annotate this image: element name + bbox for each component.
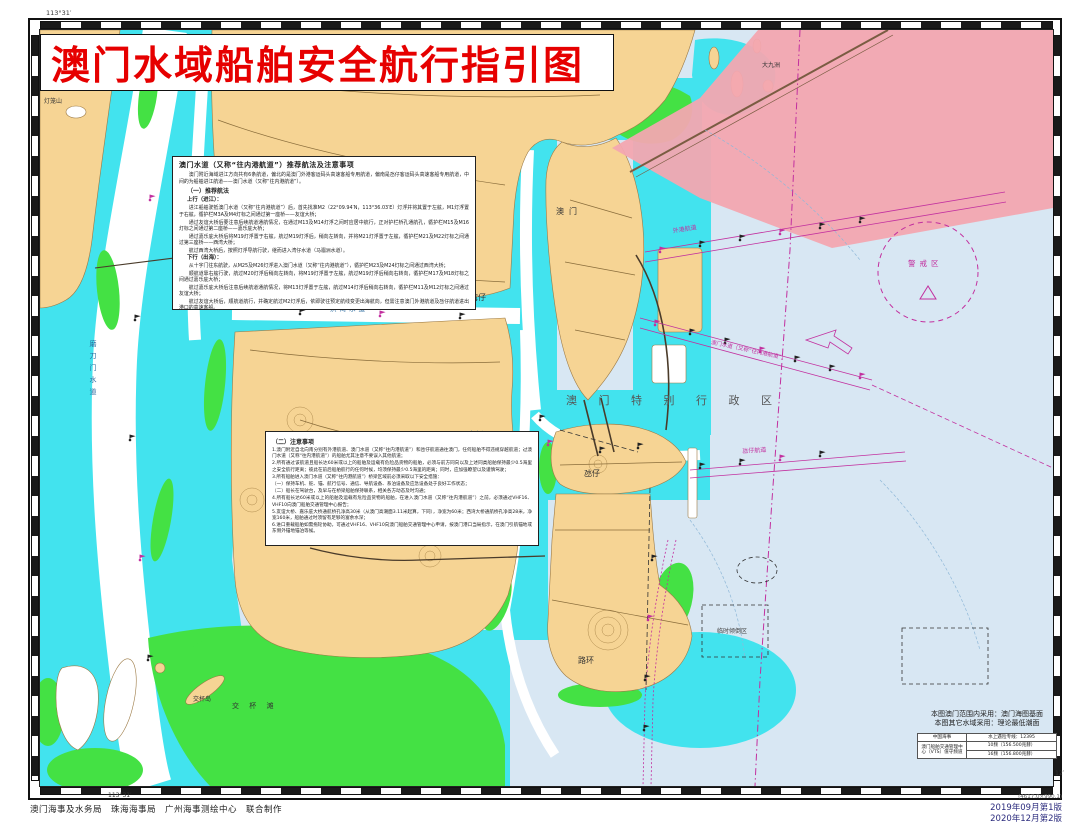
- contact-table-value: 水上遇险专线：12395: [967, 733, 1057, 742]
- notice-text-box: （二）注意事项 1.澳门附近自北向南分别有外港航道、澳门水道（又称“往内港航道”…: [265, 431, 539, 546]
- notice-item: 2.所有通过该航道且船长达60米或以上的船舶及运载有危险品货物的船舶，必须与前方…: [272, 461, 532, 473]
- downbound-step: 顺航道靠右舷行驶，航过M20灯浮后稍向左转向，将M19灯浮置于左舷，航过M19灯…: [179, 271, 469, 284]
- downbound-step: 航过嘉乐庇大桥后注意后续航道通航情况，将M13灯浮置于左舷，航过M14灯浮后稍向…: [179, 285, 469, 298]
- guidance-section1: （一）推荐航法: [187, 188, 469, 196]
- upbound-step: 通过友谊大桥后要注意后续航道通航情况，在通过M13及M14灯浮之间时应居中航行，…: [179, 220, 469, 233]
- downbound-step: 从十字门往东航驶，从M25及M26灯浮进入澳门水道（又称“往内港航道”），循护栏…: [179, 263, 469, 270]
- notice-item: 1.澳门附近自北向南分别有外港航道、澳门水道（又称“往内港航道”）和氹仔航道通往…: [272, 448, 532, 460]
- chart-title: 澳门水域船舶安全航行指引图: [40, 34, 614, 91]
- contact-table: 中国海事 水上遇险专线：12395 澳门船舶交通管理中心（VTS）值守频道 10…: [917, 733, 1057, 760]
- contact-table-label: 澳门船舶交通管理中心（VTS）值守频道: [918, 742, 967, 759]
- notice-item: （二）船长在驾驶台，及早与在桥梁船舶保持联系，相关各方动态及时沟通；: [272, 489, 532, 495]
- contact-table-label: 中国海事: [918, 733, 967, 742]
- edition-line2: 2020年12月第2版: [930, 814, 1062, 825]
- edition-line1: 2019年09月第1版: [930, 803, 1062, 814]
- datum-line2: 本图其它水域采用：理论最低潮面: [902, 719, 1072, 728]
- edition-notes: 2019年09月第1版 2020年12月第2版: [930, 803, 1062, 825]
- guidance-heading: 澳门水道（又称“往内港航道”）推荐航法及注意事项: [179, 161, 469, 170]
- longitude-label-top-left: 113°31′: [46, 9, 71, 17]
- notice-item: 4.所有船长达60米或以上的船舶及运载有危险品货物的船舶，在进入澳门水道（又称“…: [272, 496, 532, 508]
- nautical-chart-map: [0, 0, 1080, 825]
- plot-size-note: (4617.0×990.1): [990, 794, 1062, 800]
- notice-item: （一）保持车机、舵、锚、航行信号、通信、导航设备、系泊设备及应急设备处于良好工作…: [272, 482, 532, 488]
- notice-heading: （二）注意事项: [272, 439, 532, 447]
- guidance-text-box: 澳门水道（又称“往内港航道”）推荐航法及注意事项 澳门附近海域进江方向共有6条航…: [172, 156, 476, 310]
- contact-table-value: 16频（156.800兆赫）: [967, 750, 1057, 759]
- downbound-step: 航过友谊大桥后，顺航道航行，并确定航过M2灯浮后，依即驶往预定航线变更出海航向，…: [179, 299, 469, 310]
- nautical-chart-page: 澳门水域船舶安全航行指引图 澳门水道（又称“往内港航道”）推荐航法及注意事项 澳…: [0, 0, 1080, 825]
- contact-table-value: 10频（156.500兆赫）: [967, 742, 1057, 751]
- publisher-credits: 澳门海事及水务局 珠海海事局 广州海事测绘中心 联合制作: [30, 803, 282, 815]
- notice-item: 5.友谊大桥、嘉乐庇大桥通航桥孔净高30米（从澳门高潮面3.11米起算，下同），…: [272, 510, 532, 522]
- upbound-step: 通过嘉乐庇大桥后将M19灯浮置于右舷，航过M19灯浮后，稍向左转向，并将M21灯…: [179, 234, 469, 247]
- upbound-step: 进江船舶驶抵澳门水道（又称“往内港航道”）后，首先找准M2（22°09.94′N…: [179, 205, 469, 218]
- downbound-heading: 下行（出海）：: [187, 255, 469, 262]
- notice-item: 6.进口重载船舶如需拖轮协助，可通过VHF16、VHF10向澳门船舶交通管理中心…: [272, 523, 532, 535]
- longitude-label-bottom-left: 113°31′: [108, 792, 131, 799]
- upbound-heading: 上行（进江）：: [187, 197, 469, 204]
- upbound-step: 航过西湾大桥后，按照灯浮导航行驶，继而进入湾仔水道（马骝洲水道）。: [179, 248, 469, 255]
- guidance-intro: 澳门附近海域进江方向共有6条航道，偏北的是澳门外港客运码头高速客船专用航道，偏南…: [179, 172, 469, 185]
- datum-note-block: 本图澳门范围内采用：澳门海图基面 本图其它水域采用：理论最低潮面 中国海事 水上…: [902, 710, 1072, 759]
- latitude-label-right: 12′: [1055, 770, 1064, 777]
- notice-item: 3.所有船舶进入澳门水道（又称“往内港航道”）桥梁区域前必须采取以下安全措施：: [272, 475, 532, 481]
